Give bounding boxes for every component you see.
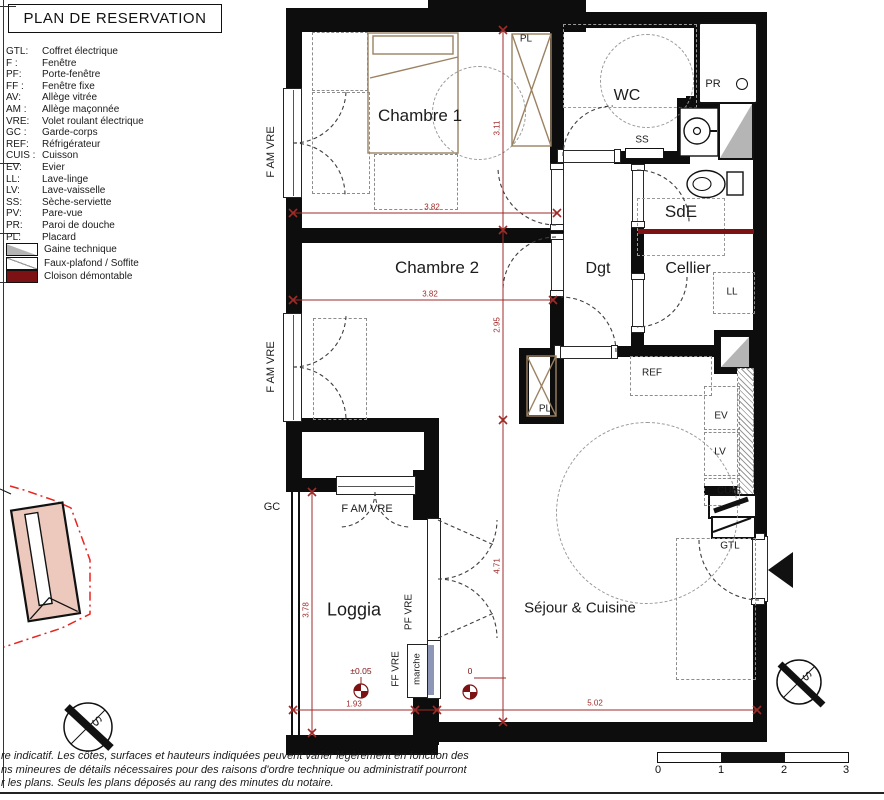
cuis-label: CUIS [717, 486, 741, 497]
legend-row: FF :Fenêtre fixe [6, 81, 236, 93]
ev-label: EV [714, 411, 727, 422]
toilet-icon [687, 171, 743, 198]
dim-chambre2-width: 3.82 [422, 290, 438, 299]
cloison-demontable-swatch-icon [6, 270, 38, 283]
scale-tick: 3 [843, 764, 849, 776]
disclaimer-text: re indicatif. Les côtes, surfaces et hau… [1, 750, 471, 791]
ll-label: LL [726, 287, 737, 298]
scale-tick: 0 [655, 764, 661, 776]
furniture-box [312, 92, 370, 194]
garde-corps-rail [291, 492, 300, 735]
gaine-technique-cuisine-icon [720, 336, 750, 368]
gaine-technique-sde-icon [718, 102, 754, 160]
dim-chambre1-height: 3.11 [493, 121, 502, 136]
door-wc [560, 150, 618, 163]
furniture-box [374, 154, 458, 210]
legend: GTL:Coffret électrique F :Fenêtre PF:Por… [6, 46, 236, 284]
legend-row: SS:Sèche-serviette [6, 197, 236, 209]
legend-row: PL:Placard [6, 232, 236, 244]
compass-south-letter: S [799, 668, 815, 683]
dim-sejour-width: 5.02 [587, 699, 603, 708]
door-chambre1 [551, 166, 564, 228]
room-label-sejour: Séjour & Cuisine [524, 600, 636, 617]
legend-row: F :Fenêtre [6, 58, 236, 70]
legend-row: PV:Pare-vue [6, 208, 236, 220]
shower-drain-icon [736, 78, 748, 90]
furniture-box [313, 318, 367, 420]
ff-vre-label: FF VRE [391, 651, 402, 687]
legend-row: PF:Porte-fenêtre [6, 69, 236, 81]
legend-row: REF:Réfrigérateur [6, 139, 236, 151]
page-frame-bottom [0, 792, 884, 794]
faux-plafond-swatch-icon [6, 257, 38, 270]
legend-row: CUIS :Cuisson [6, 150, 236, 162]
dim-loggia-height: 3.78 [302, 602, 311, 618]
dim-loggia-width: 1.93 [346, 700, 362, 709]
door-cellier [632, 276, 644, 330]
marche-label: marche [412, 653, 423, 685]
level-sejour: 0 [468, 666, 473, 676]
f-am-vre-label-left1: F AM VRE [265, 126, 277, 177]
legend-swatch-row: Faux-plafond / Soffite [6, 257, 236, 271]
furniture-box [312, 32, 368, 91]
ev-box [704, 386, 740, 430]
legend-row: VRE:Volet roulant électrique [6, 116, 236, 128]
page-title: PLAN DE RESERVATION [8, 4, 222, 33]
scale-tick: 1 [718, 764, 724, 776]
gc-label: GC [264, 501, 281, 513]
window-chambre1 [283, 88, 302, 198]
compass-south-left [64, 703, 112, 751]
clearance-circle-wc [600, 34, 694, 128]
pr-label: PR [705, 78, 720, 90]
pl-label-chambre1: PL [520, 34, 532, 45]
entrance-arrow-icon [768, 552, 793, 588]
pf-vre-label: PF VRE [404, 594, 415, 630]
room-label-cellier: Cellier [665, 260, 710, 278]
shower-pr-box [698, 22, 758, 104]
legend-row: AM :Allège maçonnée [6, 104, 236, 116]
floor-plan-page: PLAN DE RESERVATION GTL:Coffret électriq… [0, 0, 884, 800]
legend-swatch-row: Cloison démontable [6, 270, 236, 284]
gaine-technique-swatch-icon [6, 243, 38, 256]
legend-row: GC :Garde-corps [6, 127, 236, 139]
room-label-sde: SdE [665, 202, 697, 222]
gtl-label: GTL [720, 541, 739, 552]
legend-row: EV:Evier [6, 162, 236, 174]
door-dgt-sejour [557, 346, 615, 359]
pillow [373, 36, 453, 54]
room-label-chambre1: Chambre 1 [378, 106, 462, 126]
room-label-chambre2: Chambre 2 [395, 258, 479, 278]
room-label-wc: WC [614, 87, 641, 105]
page-frame-left [3, 0, 4, 788]
legend-row: LL:Lave-linge [6, 174, 236, 186]
marche-strip [428, 645, 434, 695]
legend-row: LV:Lave-vaisselle [6, 185, 236, 197]
pl-label-sejour: PL [539, 404, 551, 415]
legend-row: GTL:Coffret électrique [6, 46, 236, 58]
level-loggia: ±0.05 [350, 666, 371, 676]
table-circle-sejour [556, 422, 738, 604]
door-chambre2 [551, 236, 564, 294]
dim-chambre1-width: 3.82 [424, 203, 440, 212]
dim-sejour-height: 4.71 [493, 558, 502, 574]
window-loggia-top [336, 476, 416, 495]
f-am-vre-label-top: F AM VRE [341, 503, 392, 515]
legend-row: AV:Allège vitrée [6, 92, 236, 104]
dim-chambre2-height: 2.95 [493, 317, 502, 333]
scale-tick: 2 [781, 764, 787, 776]
compass-south-right [777, 660, 823, 705]
ss-label: SS [635, 135, 648, 146]
room-label-dgt: Dgt [586, 260, 611, 278]
legend-row: PR:Paroi de douche [6, 220, 236, 232]
compass-south-letter: S [89, 713, 106, 729]
window-chambre2 [283, 313, 302, 422]
f-am-vre-label-left2: F AM VRE [265, 341, 277, 392]
site-key-plan [0, 486, 90, 647]
lv-label: LV [714, 447, 726, 458]
ref-label: REF [642, 368, 662, 379]
porte-fenetre-loggia [427, 518, 441, 642]
room-label-loggia: Loggia [327, 600, 381, 621]
legend-swatch-row: Gaine technique [6, 243, 236, 257]
radiator-ss-icon [625, 148, 664, 159]
scale-bar [657, 752, 849, 763]
